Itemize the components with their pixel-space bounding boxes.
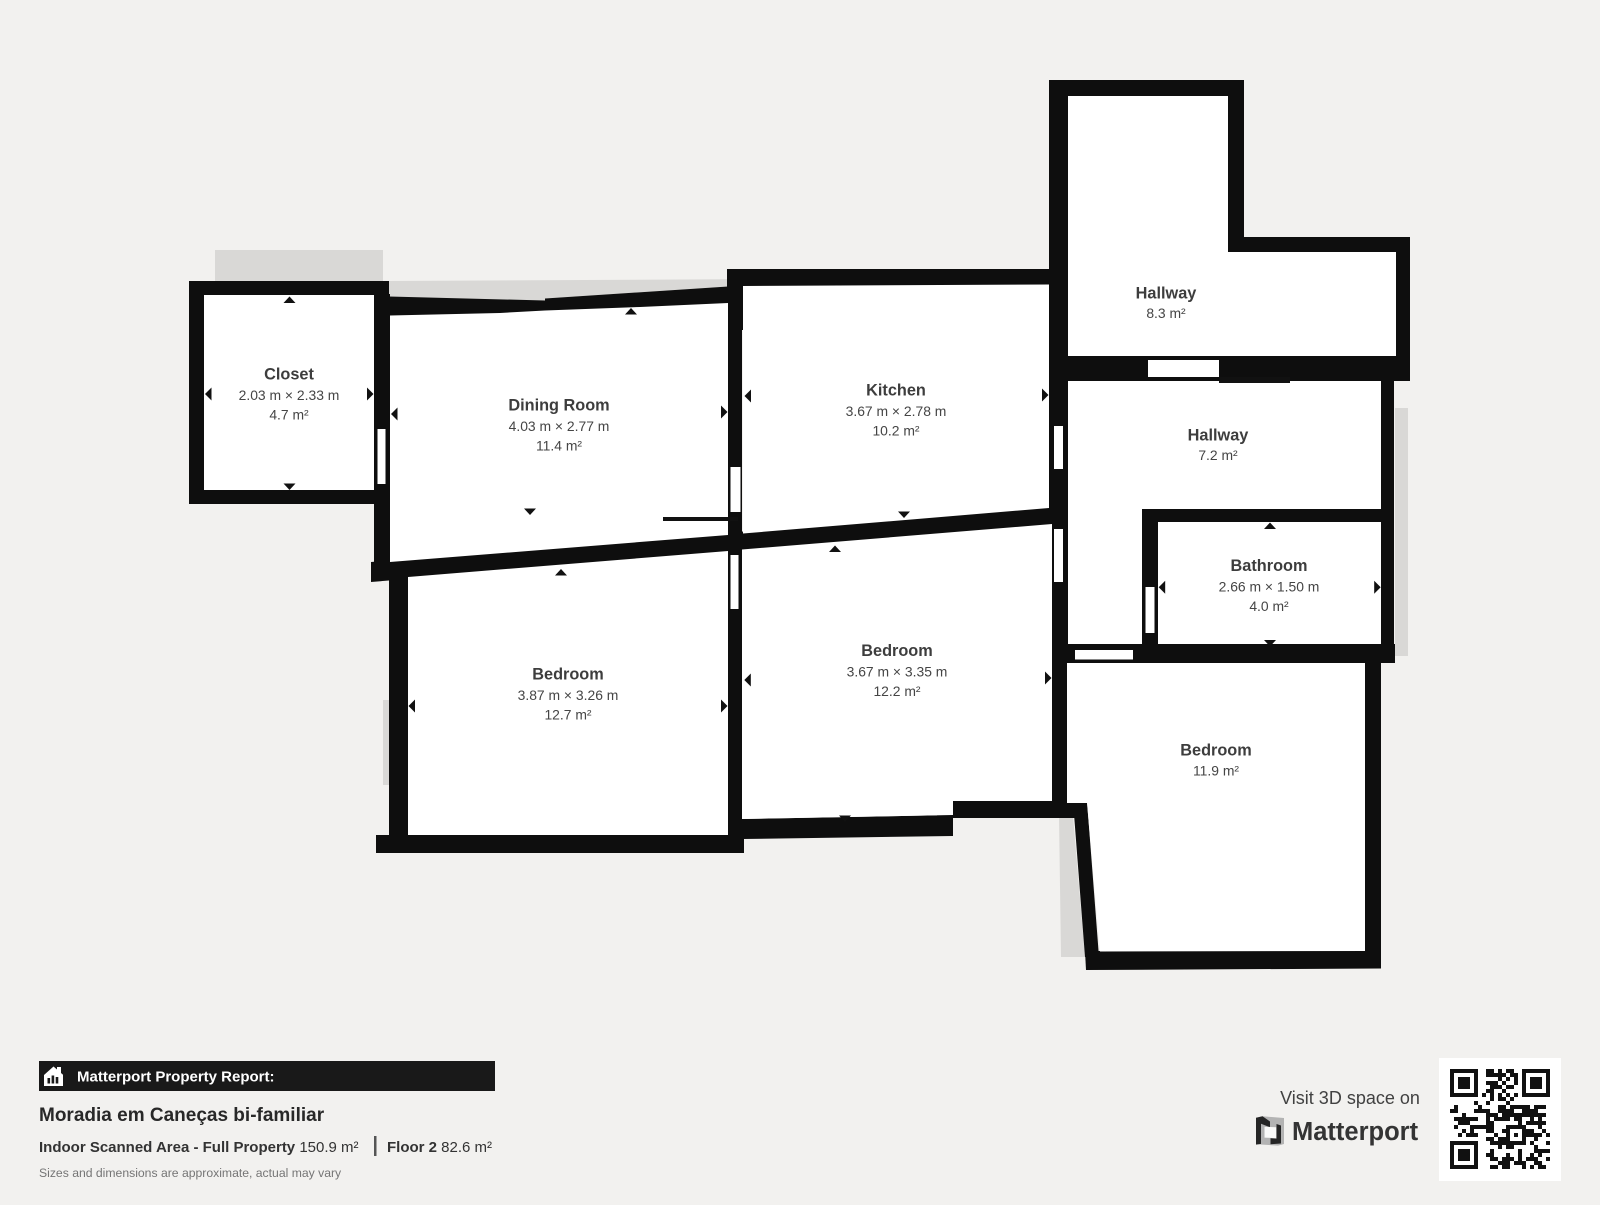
svg-text:4.7 m²: 4.7 m² xyxy=(269,407,309,423)
svg-text:Matterport Property Report:: Matterport Property Report: xyxy=(77,1069,275,1086)
svg-text:Floor 2 82.6 m²: Floor 2 82.6 m² xyxy=(387,1139,492,1156)
svg-text:Dining Room: Dining Room xyxy=(508,397,609,415)
svg-text:Matterport: Matterport xyxy=(1292,1118,1419,1146)
svg-text:3.67 m × 2.78 m: 3.67 m × 2.78 m xyxy=(846,403,947,419)
svg-text:Moradia em Caneças bi-familiar: Moradia em Caneças bi-familiar xyxy=(39,1105,325,1126)
svg-text:10.2 m²: 10.2 m² xyxy=(872,423,919,439)
svg-text:2.03 m × 2.33 m: 2.03 m × 2.33 m xyxy=(239,387,340,403)
svg-text:8.3 m²: 8.3 m² xyxy=(1146,305,1186,321)
svg-text:Bedroom: Bedroom xyxy=(861,642,932,660)
svg-text:7.2 m²: 7.2 m² xyxy=(1198,447,1238,463)
svg-text:Bedroom: Bedroom xyxy=(1180,742,1251,760)
svg-text:11.9 m²: 11.9 m² xyxy=(1193,763,1239,779)
svg-text:Hallway: Hallway xyxy=(1188,427,1249,445)
svg-text:3.67 m × 3.35 m: 3.67 m × 3.35 m xyxy=(847,664,948,680)
svg-text:Visit 3D space on: Visit 3D space on xyxy=(1280,1088,1420,1108)
svg-text:Hallway: Hallway xyxy=(1136,285,1197,303)
svg-text:Sizes and dimensions are appro: Sizes and dimensions are approximate, ac… xyxy=(39,1166,342,1180)
svg-text:3.87 m × 3.26 m: 3.87 m × 3.26 m xyxy=(518,687,619,703)
svg-text:12.2 m²: 12.2 m² xyxy=(873,683,920,699)
svg-text:Bathroom: Bathroom xyxy=(1231,557,1308,575)
svg-text:Closet: Closet xyxy=(264,366,314,384)
svg-text:Indoor Scanned Area - Full Pro: Indoor Scanned Area - Full Property 150.… xyxy=(39,1139,359,1156)
svg-text:Bedroom: Bedroom xyxy=(532,666,603,684)
svg-text:Kitchen: Kitchen xyxy=(866,382,926,400)
svg-text:4.0 m²: 4.0 m² xyxy=(1249,598,1289,614)
svg-text:2.66 m × 1.50 m: 2.66 m × 1.50 m xyxy=(1219,579,1320,595)
svg-text:11.4 m²: 11.4 m² xyxy=(536,438,582,454)
svg-text:12.7 m²: 12.7 m² xyxy=(544,707,591,723)
svg-text:4.03 m × 2.77 m: 4.03 m × 2.77 m xyxy=(509,418,610,434)
